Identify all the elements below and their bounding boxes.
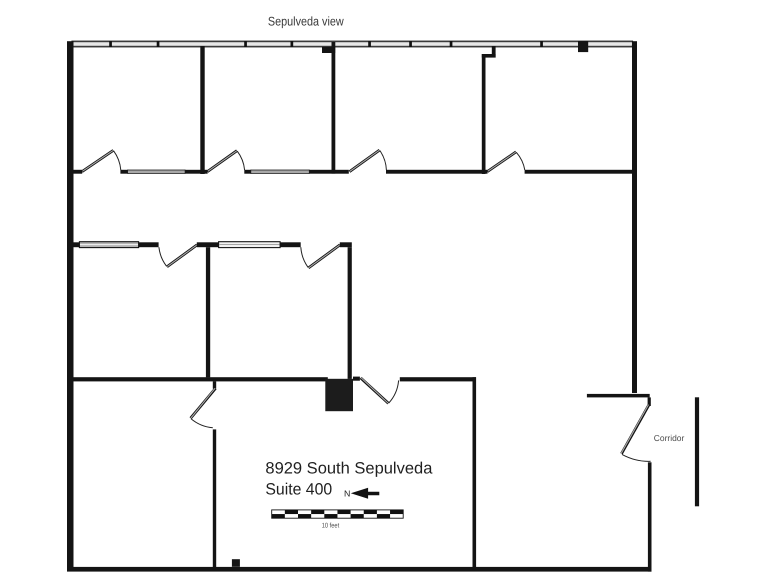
svg-text:Suite 400: Suite 400 <box>265 481 332 499</box>
svg-text:8929 South Sepulveda: 8929 South Sepulveda <box>265 460 433 478</box>
svg-text:10 feet: 10 feet <box>322 523 340 530</box>
svg-text:Sepulveda view: Sepulveda view <box>268 15 345 29</box>
svg-text:N: N <box>344 489 350 499</box>
svg-text:Corridor: Corridor <box>654 433 685 443</box>
